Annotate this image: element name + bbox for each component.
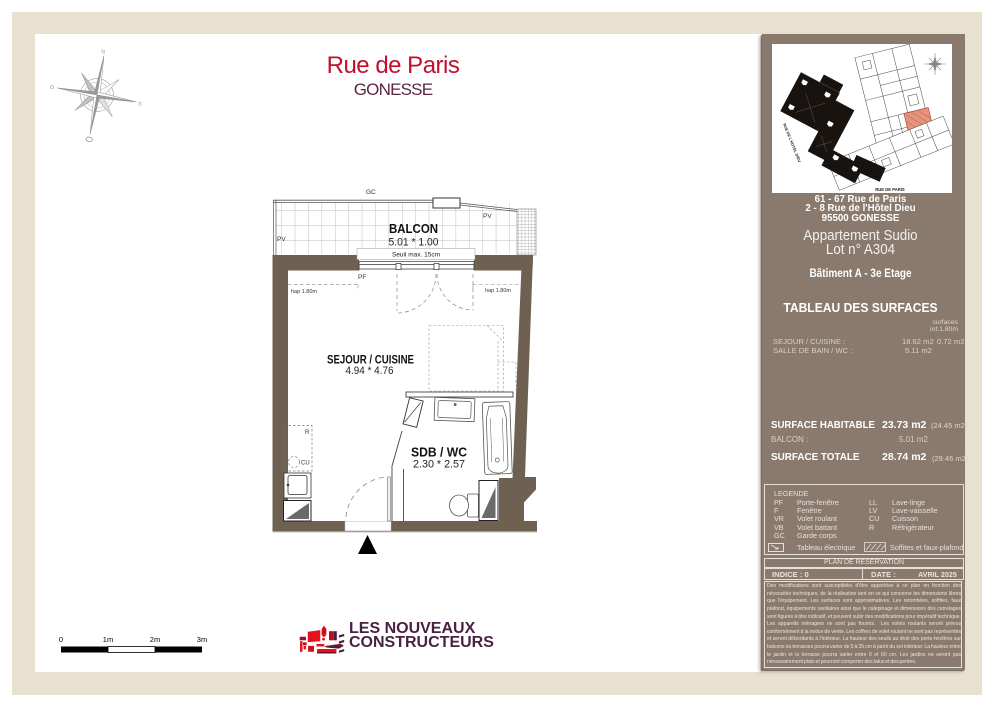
svg-text:hap 1.80m: hap 1.80m	[291, 289, 317, 295]
svg-text:4.94 * 4.76: 4.94 * 4.76	[346, 365, 394, 377]
svg-text:O: O	[49, 85, 55, 92]
svg-text:2m: 2m	[150, 635, 160, 644]
svg-text:N: N	[100, 49, 105, 56]
svg-text:SDB / WC: SDB / WC	[411, 446, 467, 460]
svg-text:R: R	[305, 430, 310, 436]
svg-text:hap 1.80m: hap 1.80m	[485, 288, 511, 294]
svg-text:S: S	[137, 101, 142, 108]
svg-text:0: 0	[59, 635, 63, 644]
svg-text:2.30 * 2.57: 2.30 * 2.57	[413, 459, 465, 471]
svg-text:CU: CU	[301, 461, 310, 467]
svg-text:RUE DE L'HOTEL DIEU: RUE DE L'HOTEL DIEU	[782, 123, 801, 163]
svg-text:RUE DE PARIS: RUE DE PARIS	[875, 187, 905, 192]
svg-text:PV: PV	[277, 236, 286, 243]
svg-text:PV: PV	[483, 213, 492, 220]
svg-text:GC: GC	[366, 189, 376, 196]
svg-text:Seuil max. 15cm: Seuil max. 15cm	[392, 252, 440, 259]
svg-text:1m: 1m	[103, 635, 113, 644]
svg-text:5.01 * 1.00: 5.01 * 1.00	[389, 237, 439, 249]
svg-text:BALCON: BALCON	[389, 221, 438, 236]
svg-text:3m: 3m	[197, 635, 207, 644]
svg-text:PF: PF	[358, 274, 366, 281]
